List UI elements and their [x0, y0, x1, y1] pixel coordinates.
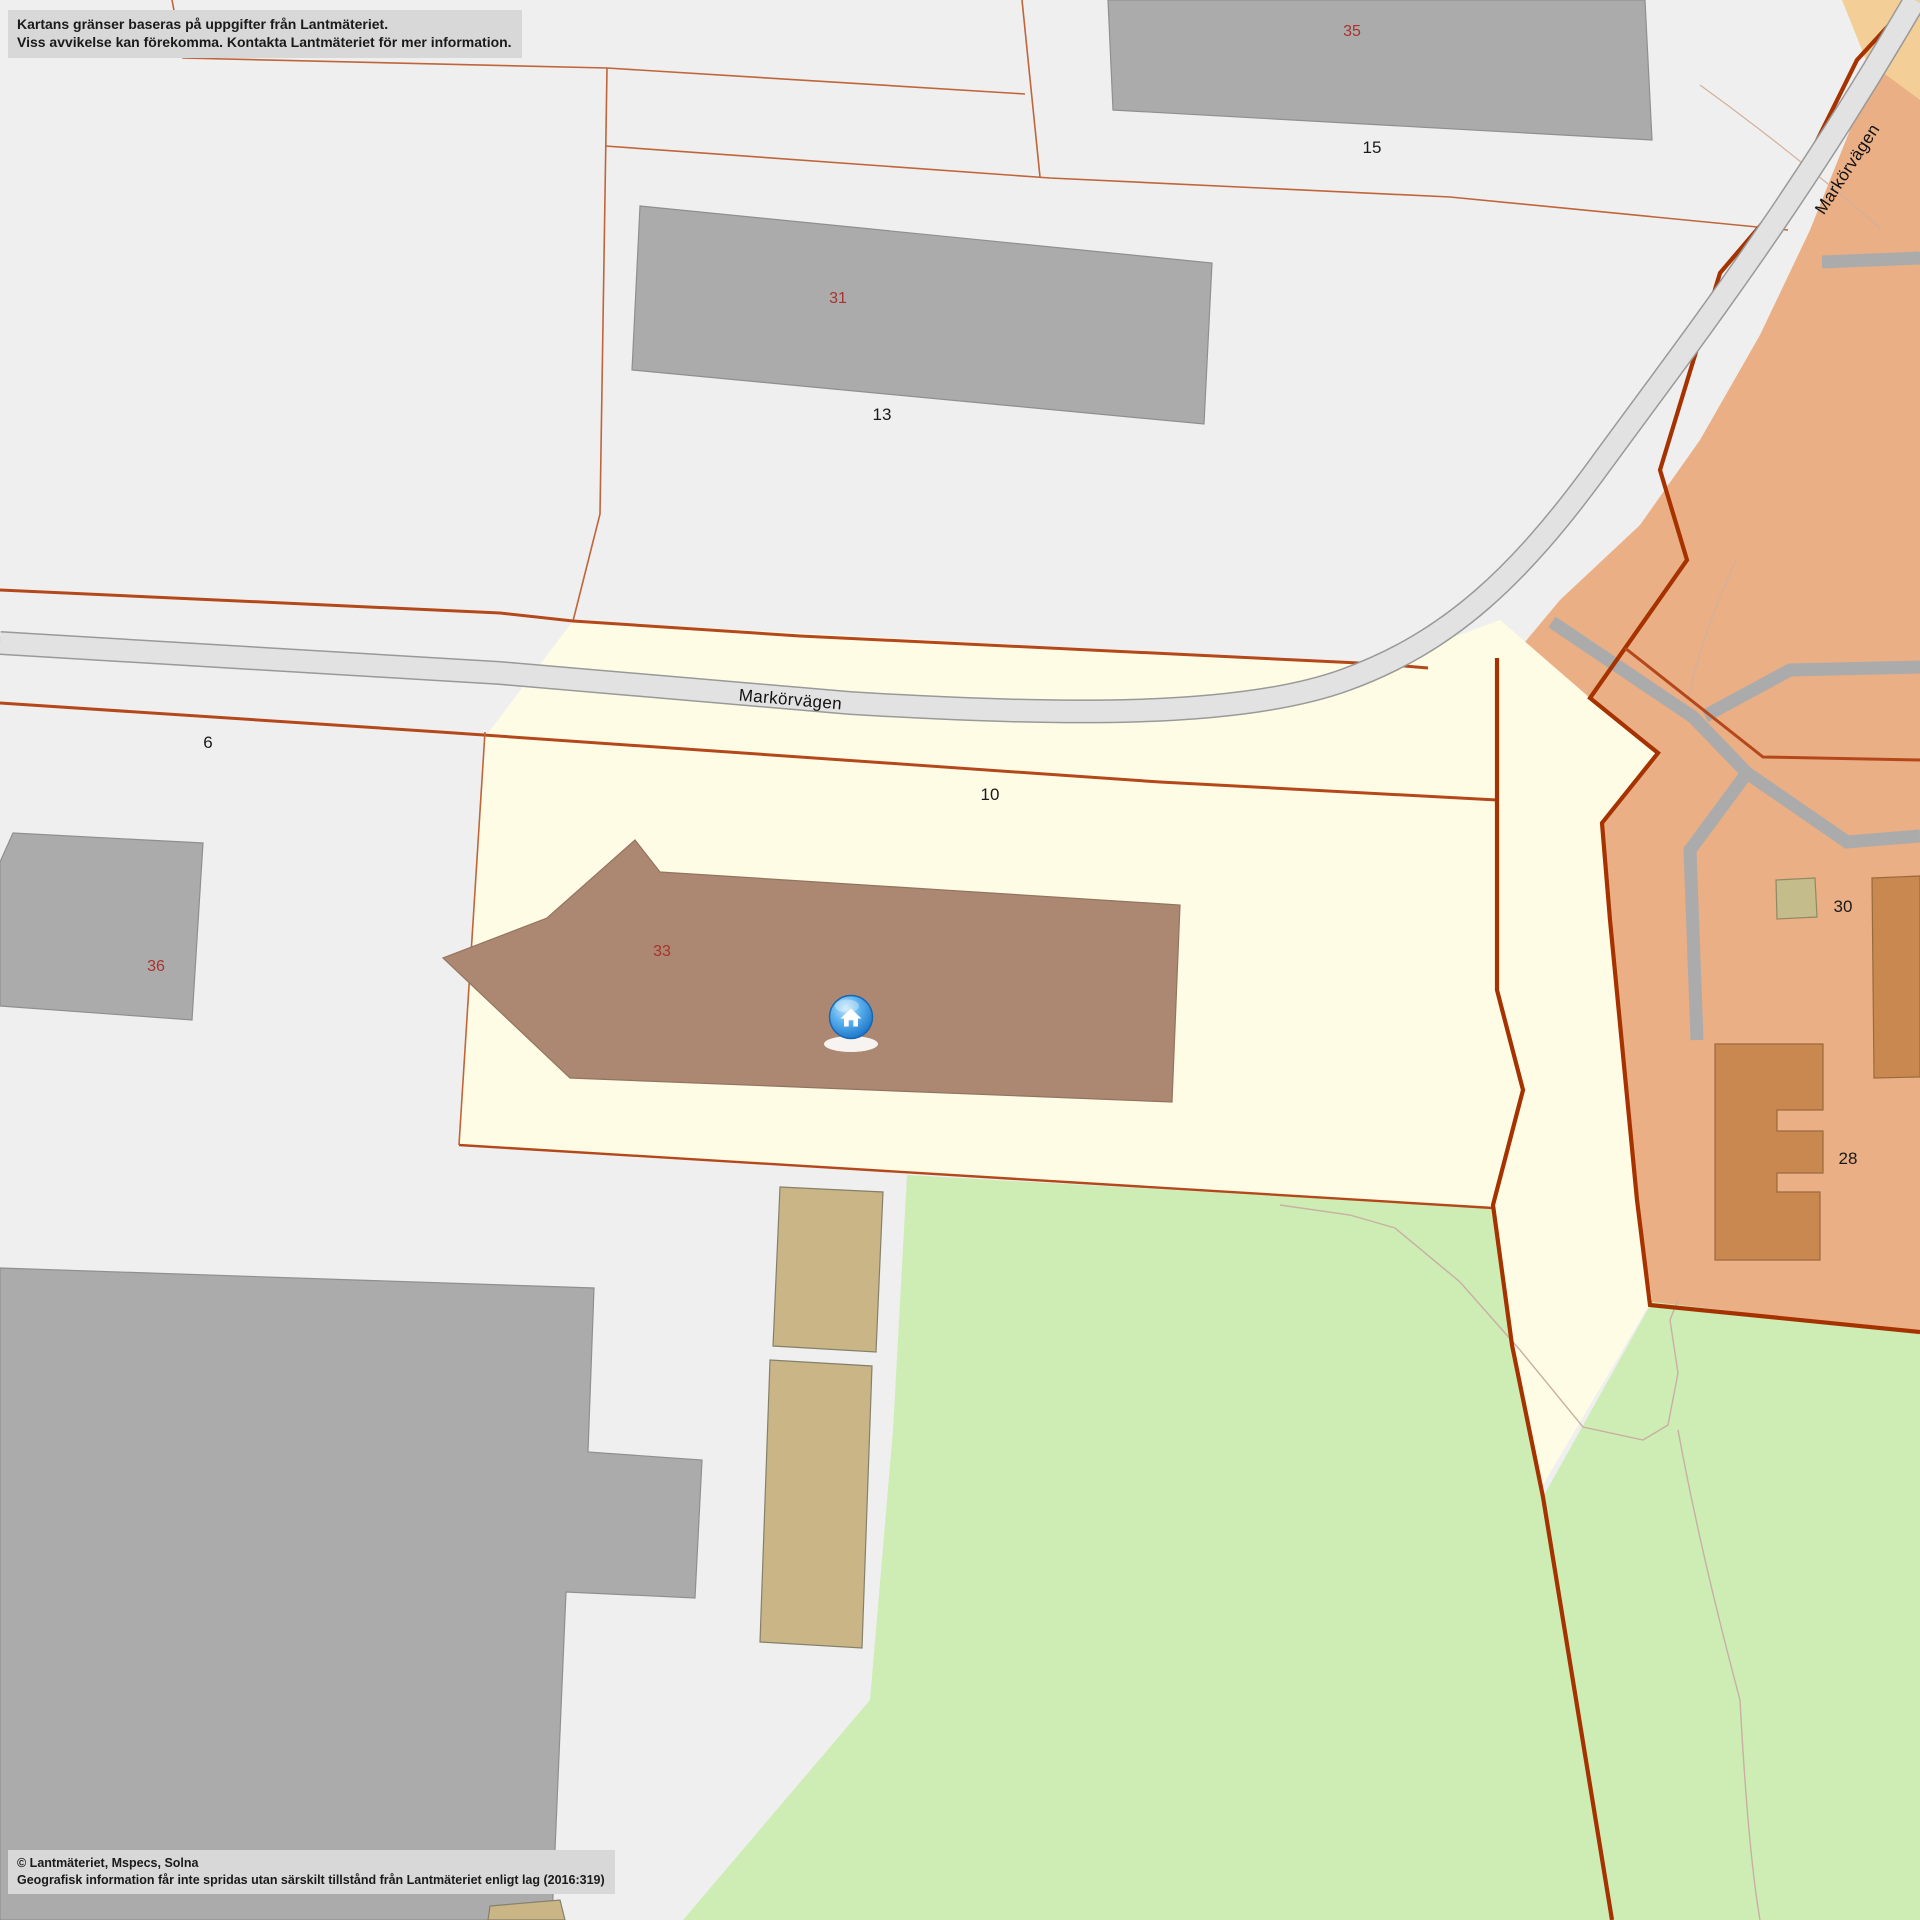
- building-36-label: 36: [147, 958, 165, 975]
- copyright-line2: Geografisk information får inte spridas …: [17, 1872, 605, 1889]
- disclaimer-line2: Viss avvikelse kan förekomma. Kontakta L…: [17, 33, 512, 51]
- disclaimer-line1: Kartans gränser baseras på uppgifter frå…: [17, 15, 512, 33]
- disclaimer-box: Kartans gränser baseras på uppgifter frå…: [8, 10, 522, 58]
- building-28: [1715, 1044, 1823, 1260]
- building-30: [1776, 878, 1817, 919]
- building-35-label: 35: [1343, 23, 1361, 40]
- copyright-box: © Lantmäteriet, Mspecs, Solna Geografisk…: [8, 1850, 615, 1894]
- building-31-label: 31: [829, 290, 847, 307]
- copyright-line1: © Lantmäteriet, Mspecs, Solna: [17, 1855, 605, 1872]
- building-bottom-left: [0, 1268, 702, 1920]
- building-36: [0, 833, 203, 1020]
- boundary-line: [573, 68, 607, 621]
- building-east-edge: [1872, 876, 1920, 1078]
- plot-13-label: 13: [873, 405, 892, 424]
- building-33-label: 33: [653, 943, 671, 960]
- building-28-label: 28: [1839, 1149, 1858, 1168]
- building-tan-south: [760, 1360, 872, 1648]
- building-31: [632, 206, 1212, 424]
- building-35: [1108, 0, 1652, 140]
- marker-gloss: [835, 1000, 859, 1013]
- map-layers: Markörvägen Markörvägen 35 15 31 13 6 10…: [0, 0, 1920, 1920]
- plot-6-label: 6: [203, 733, 212, 752]
- building-tan-north: [773, 1187, 883, 1352]
- green-area-east: [1543, 1302, 1920, 1920]
- boundary-line: [1022, 0, 1040, 177]
- plot-10-label: 10: [981, 785, 1000, 804]
- plot-15-label: 15: [1363, 138, 1382, 157]
- map-canvas[interactable]: Markörvägen Markörvägen 35 15 31 13 6 10…: [0, 0, 1920, 1920]
- building-30-label: 30: [1834, 897, 1853, 916]
- boundary-line: [605, 146, 1788, 230]
- minor-road: [1822, 258, 1920, 262]
